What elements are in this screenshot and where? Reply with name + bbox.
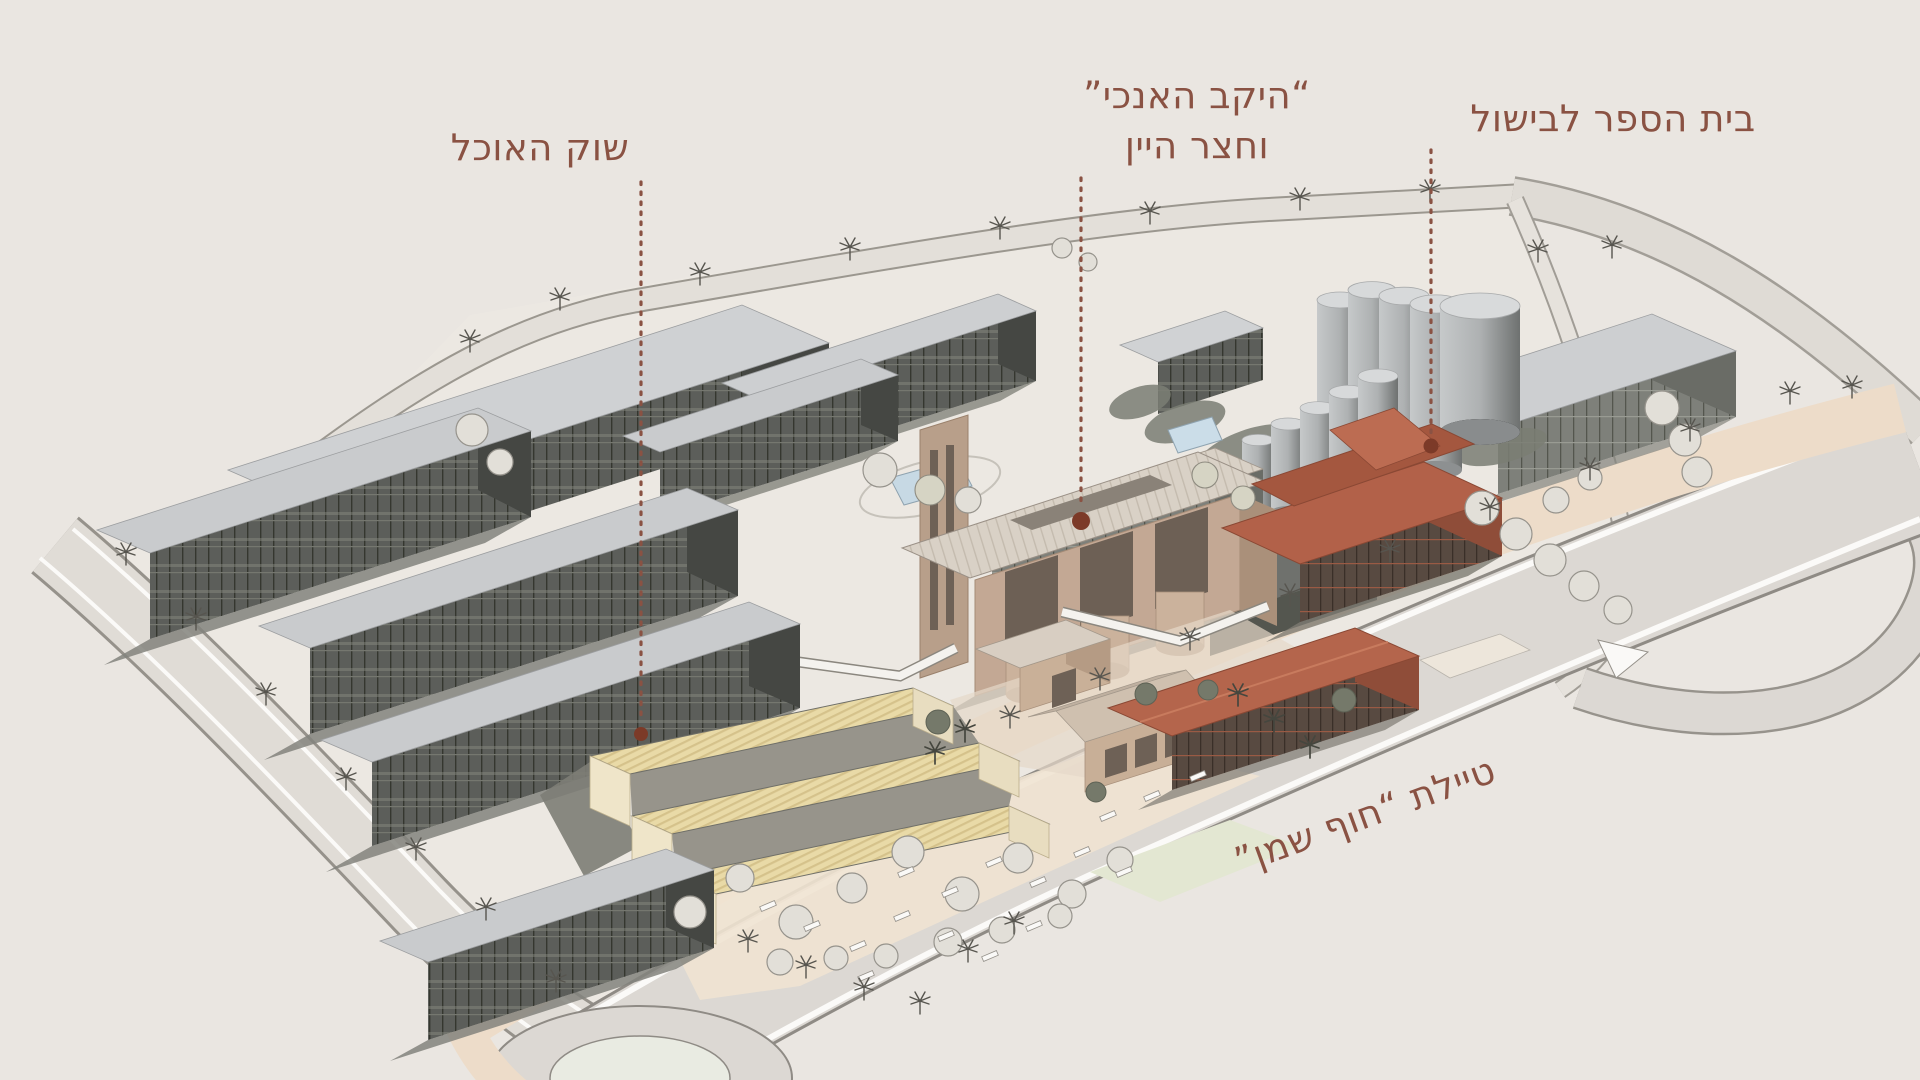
site-plan-illustration: שוק האוכל “היקב האנכי” וחצר היין בית הספ… (0, 0, 1920, 1080)
silo-large (1440, 293, 1520, 445)
leader-dot-cooking-school (1424, 439, 1439, 454)
label-food-market: שוק האוכל (451, 126, 629, 169)
label-vertical-winery-line2: וחצר היין (1125, 124, 1269, 167)
site-plan-figure: שוק האוכל “היקב האנכי” וחצר היין בית הספ… (0, 0, 1920, 1080)
label-cooking-school: בית הספר לבישול (1470, 97, 1755, 140)
leader-dot-food-market (634, 727, 648, 741)
label-vertical-winery-line1: “היקב האנכי” (1083, 74, 1311, 117)
leader-dot-vertical-winery (1072, 512, 1090, 530)
